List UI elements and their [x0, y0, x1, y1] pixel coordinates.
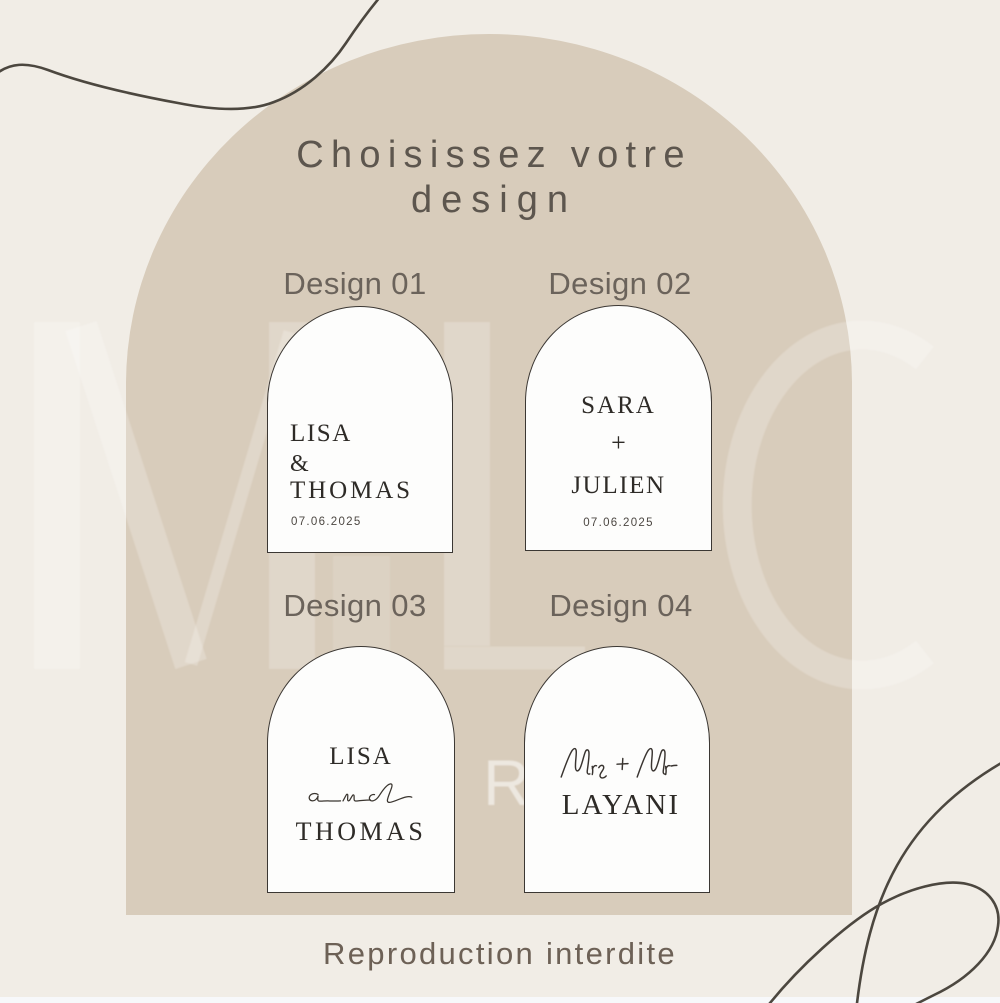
svg-text:R: R	[483, 746, 530, 819]
